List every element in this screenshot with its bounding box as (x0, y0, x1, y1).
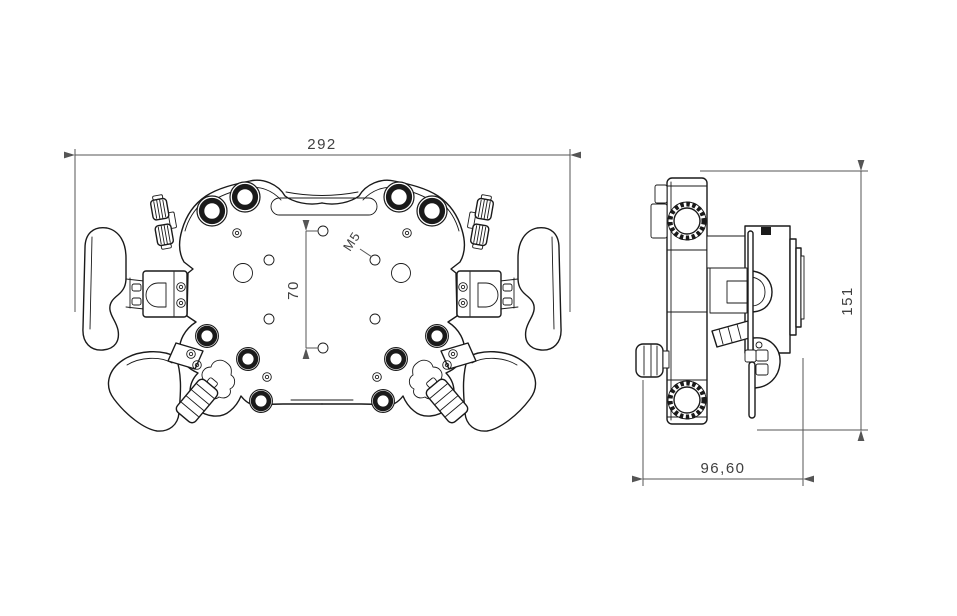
display-slot (271, 198, 377, 215)
dim-width-text: 292 (307, 136, 337, 153)
side-view: 151 96,60 (636, 171, 868, 486)
front-view: 292 70 M5 (75, 136, 570, 431)
dim-hole-spacing: 70 (285, 231, 318, 348)
thread-callout: M5 (340, 229, 372, 257)
dim-depth-text: 96,60 (700, 460, 745, 477)
technical-drawing: 292 70 M5 (0, 0, 957, 616)
side-knurl-knob-bottom (668, 381, 706, 419)
dim-hole-spacing-text: 70 (285, 280, 302, 300)
thread-callout-text: M5 (340, 229, 364, 254)
dim-height-text: 151 (839, 286, 856, 316)
front-center-features (271, 192, 377, 353)
side-hex-knob (636, 344, 669, 377)
drawing-sheet: 292 70 M5 (0, 0, 957, 616)
side-knurl-knob-top (668, 202, 706, 240)
hub-label-mark (761, 227, 771, 235)
